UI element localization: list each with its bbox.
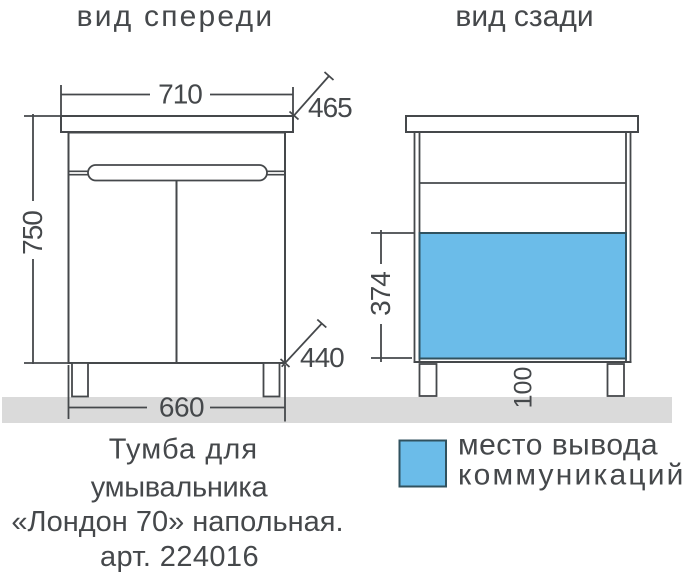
svg-text:374: 374 <box>365 272 396 316</box>
svg-text:440: 440 <box>300 342 344 373</box>
svg-text:100: 100 <box>510 367 538 409</box>
svg-text:арт. 224016: арт. 224016 <box>100 541 259 573</box>
svg-text:Тумба для: Тумба для <box>109 434 258 466</box>
svg-text:710: 710 <box>158 79 202 110</box>
svg-text:вид сзади: вид сзади <box>455 0 593 33</box>
svg-text:750: 750 <box>17 211 48 255</box>
svg-text:«Лондон 70» напольная.: «Лондон 70» напольная. <box>11 506 343 538</box>
svg-text:умывальника: умывальника <box>91 472 269 504</box>
svg-text:вид спереди: вид спереди <box>77 0 275 33</box>
svg-text:465: 465 <box>308 92 352 123</box>
svg-text:660: 660 <box>159 392 204 423</box>
svg-text:место вывода: место вывода <box>458 429 658 462</box>
svg-text:коммуникаций: коммуникаций <box>458 459 684 492</box>
